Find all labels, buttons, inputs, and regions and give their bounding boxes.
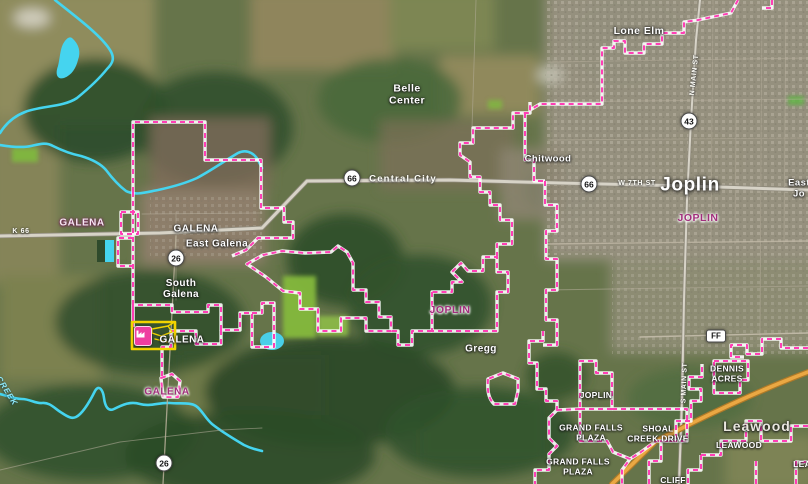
satellite-map-viewport[interactable]: 66 66 43 26 26 FF K 66 Central City W 7T… — [0, 0, 808, 484]
selected-place-marker[interactable] — [134, 326, 152, 346]
pond-rect-dark — [97, 240, 105, 262]
factory-icon — [135, 327, 147, 339]
pond-rect-cyan — [105, 240, 114, 262]
map-canvas — [0, 0, 808, 484]
